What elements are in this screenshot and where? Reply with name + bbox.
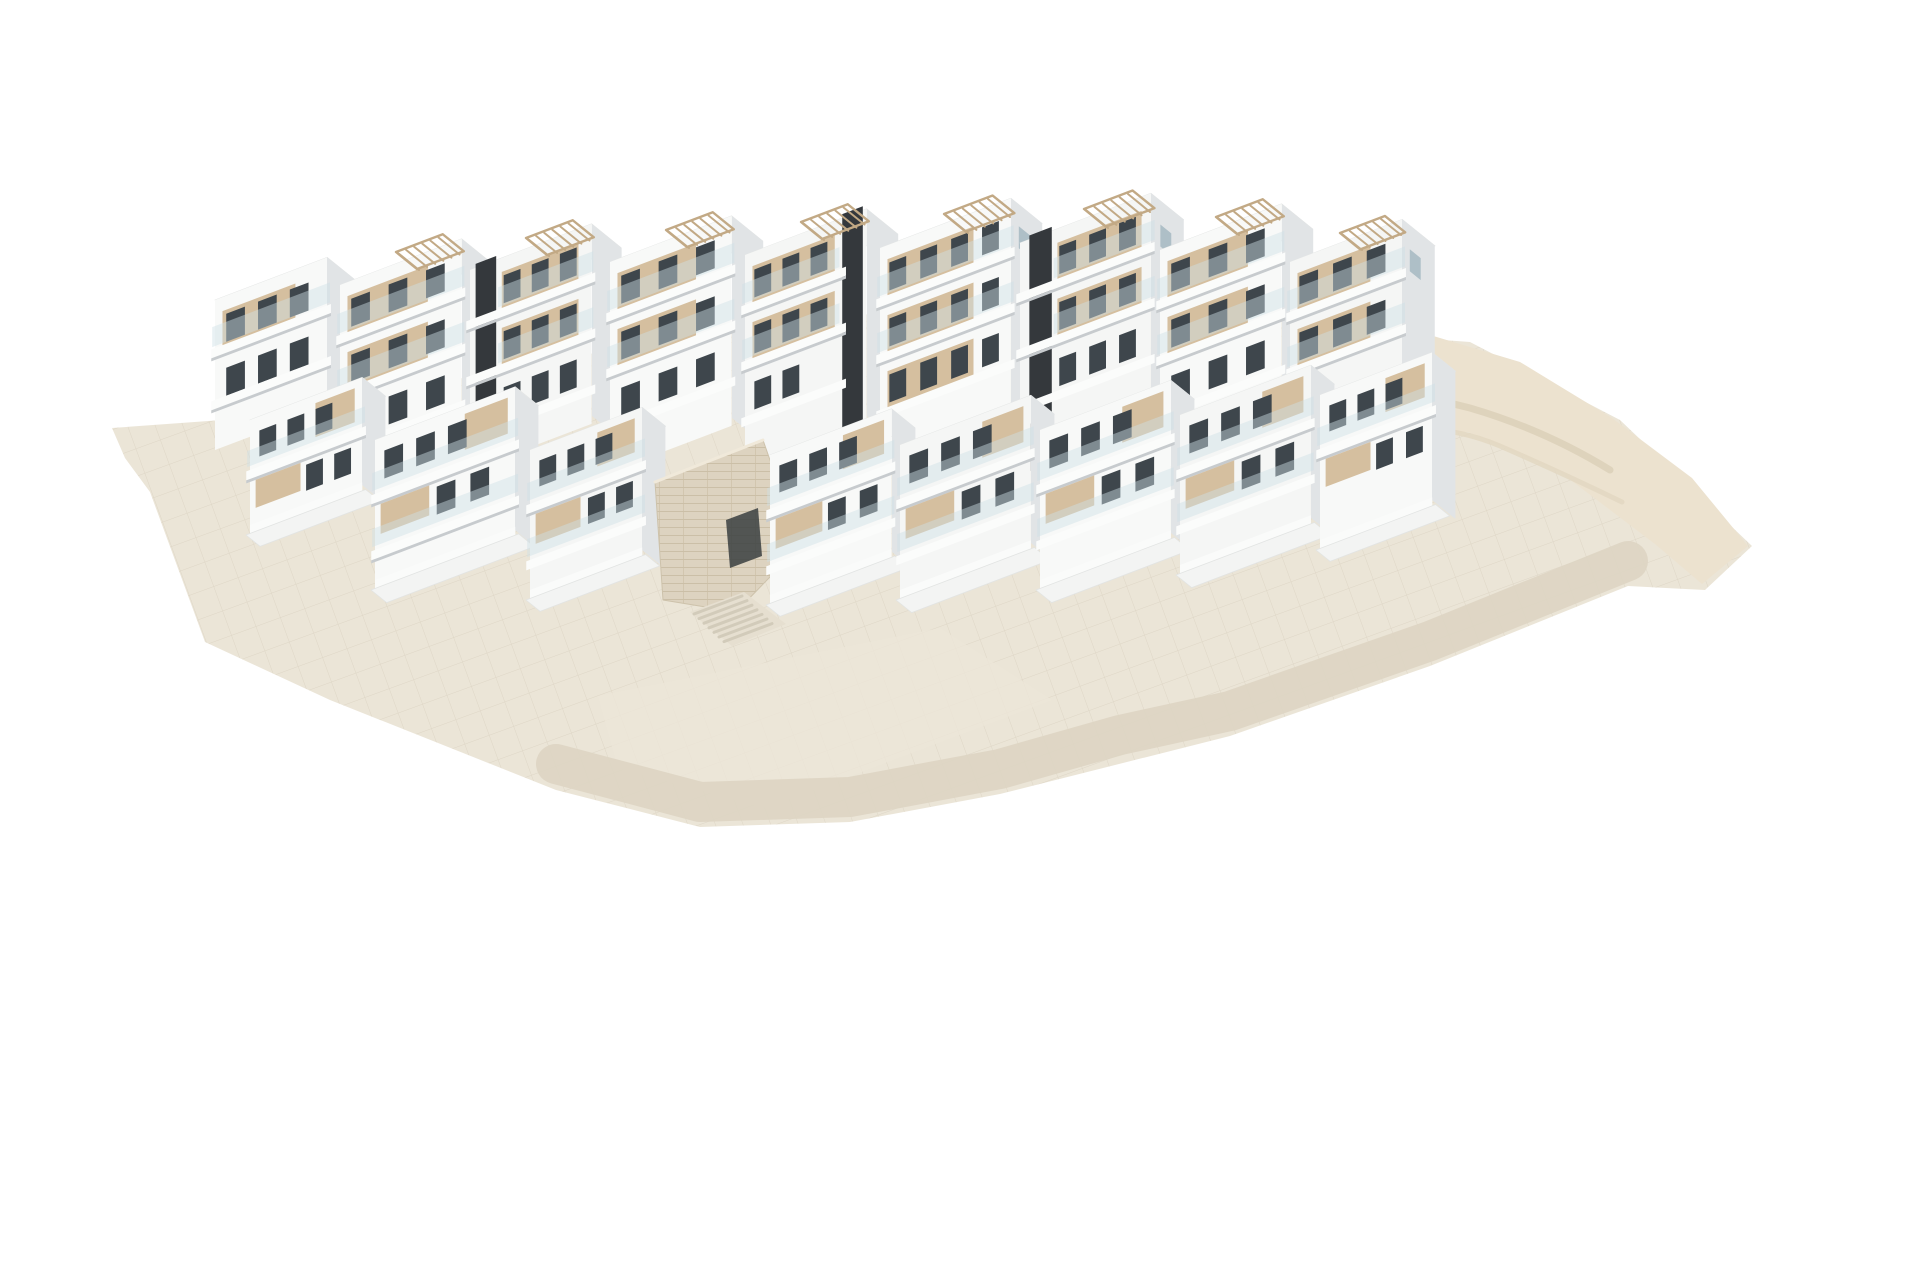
scene-svg <box>0 0 1920 1280</box>
block-f8 <box>1432 352 1455 519</box>
tower-5 <box>842 206 863 435</box>
scene-root <box>0 0 1920 1280</box>
render-canvas: Aerial 3D architectural rendering of a w… <box>0 0 1920 1280</box>
